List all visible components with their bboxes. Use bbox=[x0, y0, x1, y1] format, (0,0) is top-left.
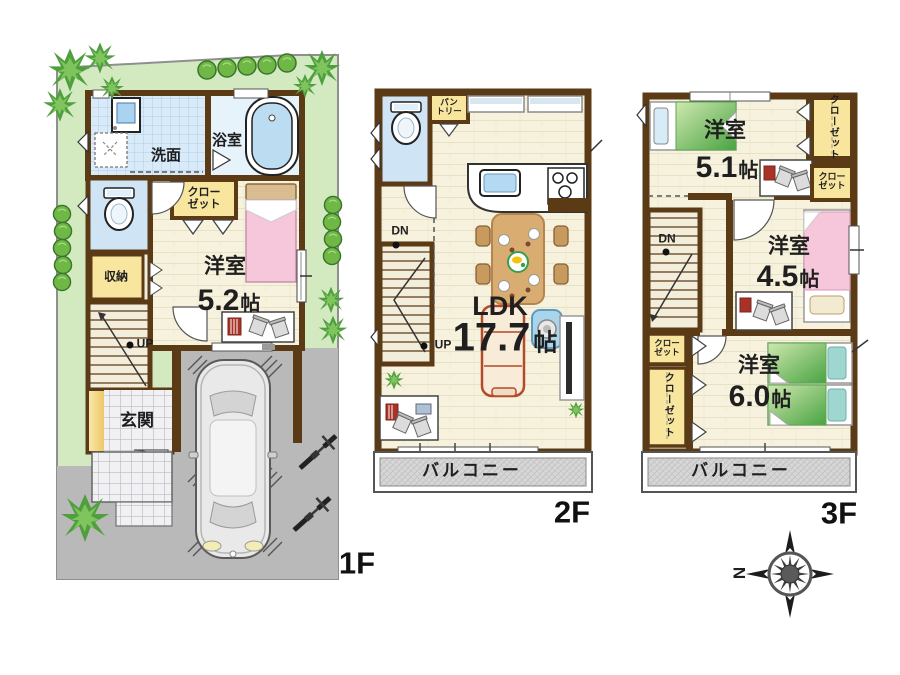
porch-1f bbox=[92, 452, 172, 502]
compass-north-label: N bbox=[731, 567, 749, 579]
room3-name-3f: 洋室 bbox=[738, 355, 780, 377]
room2-size-3f: 4.5帖 bbox=[757, 260, 820, 294]
up-label-1f: UP bbox=[137, 338, 154, 351]
dn-label-2f: DN bbox=[391, 225, 408, 238]
room-name-1f: 洋室 bbox=[204, 256, 246, 278]
desk-icon-3f-2 bbox=[736, 292, 792, 330]
bath-label: 浴室 bbox=[212, 133, 242, 149]
desk-icon-2f bbox=[380, 396, 438, 440]
up-marker-1f bbox=[127, 342, 134, 349]
toilet-icon bbox=[104, 188, 134, 230]
desk-icon-3f-1 bbox=[760, 160, 812, 196]
room-size-1f: 5.2帖 bbox=[198, 284, 261, 318]
building-2f bbox=[371, 92, 602, 460]
closet-label-3f-top2: クローゼット bbox=[818, 173, 845, 192]
balcony-label-2f: バルコニー bbox=[422, 462, 522, 480]
floor-label-2f: 2F bbox=[554, 497, 590, 530]
closet-label-1f: クローゼット bbox=[188, 187, 221, 210]
pantry-label: パントリー bbox=[436, 98, 462, 116]
bathtub-icon bbox=[246, 97, 298, 175]
toilet-icon-2f bbox=[391, 102, 421, 144]
entrance-label: 玄関 bbox=[120, 412, 154, 430]
closet-label-3f-top: クローゼット bbox=[827, 94, 838, 160]
room2-name-3f: 洋室 bbox=[768, 236, 810, 258]
car-icon bbox=[189, 360, 277, 558]
stairs-3f bbox=[648, 210, 700, 330]
up-label-2f: UP bbox=[435, 339, 452, 352]
shower-icon bbox=[95, 133, 127, 167]
closet-label-3f-left1: クローゼット bbox=[654, 339, 680, 357]
dn-label-3f: DN bbox=[658, 233, 675, 246]
storage-label: 収納 bbox=[104, 271, 128, 284]
washroom-label: 洗面 bbox=[151, 148, 181, 164]
kitchen-counter bbox=[468, 164, 588, 212]
room1-name-3f: 洋室 bbox=[704, 120, 746, 142]
closet-label-3f-left2: クローゼット bbox=[662, 372, 673, 438]
sink-icon bbox=[112, 98, 140, 132]
room3-size-3f: 6.0帖 bbox=[729, 380, 792, 414]
floor-label-1f: 1F bbox=[339, 548, 375, 581]
tv-board-icon bbox=[560, 316, 584, 400]
floor-plan-canvas: 洗面 浴室 クローゼット 収納 洋室 5.2帖 UP 玄関 1F パントリー D… bbox=[0, 0, 900, 675]
bed-icon-1f bbox=[246, 184, 296, 282]
floor-label-3f: 3F bbox=[821, 498, 857, 531]
ldk-size: 17.7帖 bbox=[453, 316, 558, 361]
balcony-label-3f: バルコニー bbox=[691, 462, 791, 480]
compass-rose-icon bbox=[746, 530, 834, 618]
room1-size-3f: 5.1帖 bbox=[696, 151, 759, 185]
